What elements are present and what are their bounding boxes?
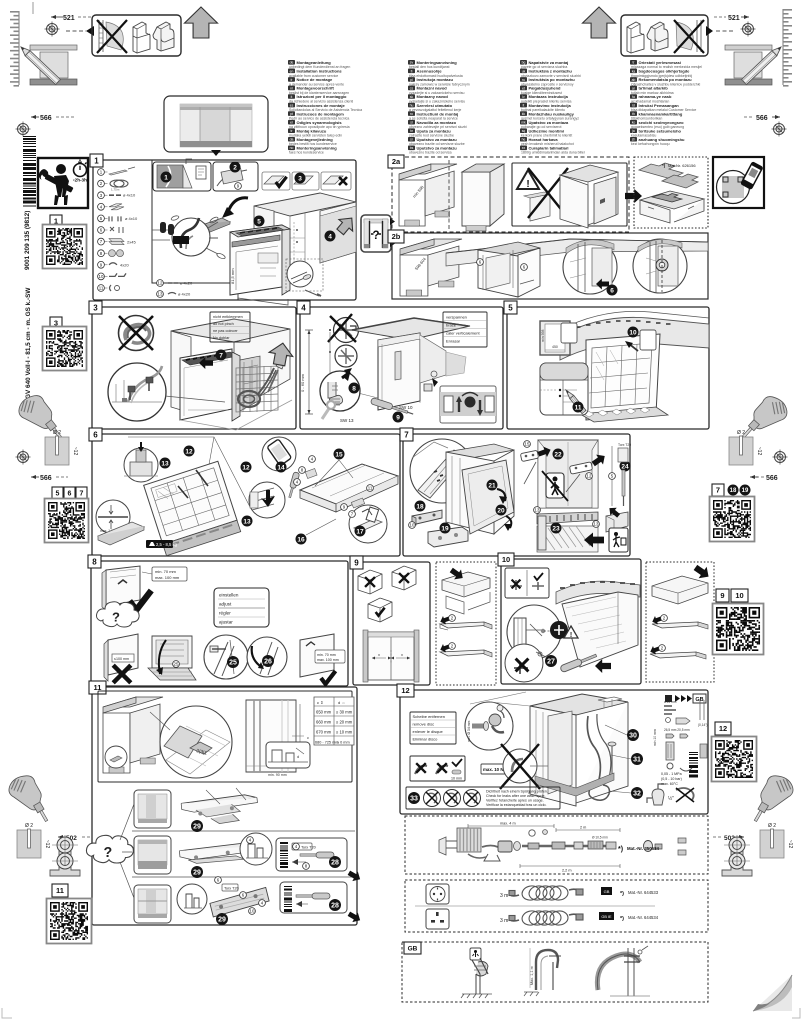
svg-text:19: 19 bbox=[742, 488, 749, 494]
svg-text:680 - 725 mm: 680 - 725 mm bbox=[315, 741, 338, 745]
svg-text:7: 7 bbox=[80, 491, 84, 498]
svg-text:25: 25 bbox=[174, 662, 179, 667]
svg-text:Scheibe entfernen: Scheibe entfernen bbox=[413, 714, 445, 719]
svg-text:brace: brace bbox=[446, 323, 457, 328]
svg-text:3: 3 bbox=[298, 175, 302, 182]
svg-text:?: ? bbox=[112, 610, 120, 625]
svg-text:faes hos kundeservice: faes hos kundeservice bbox=[289, 151, 324, 155]
svg-text:2b: 2b bbox=[392, 232, 401, 241]
svg-text:es: es bbox=[290, 103, 294, 107]
svg-text:16: 16 bbox=[297, 536, 305, 543]
svg-text:Ø 2: Ø 2 bbox=[53, 430, 61, 436]
svg-text:1800g umlddimalarimdan alda du: 1800g umlddimalarimdan alda duna biller bbox=[521, 151, 586, 155]
svg-text:~12: ~12 bbox=[787, 840, 793, 849]
svg-text:3 m: 3 m bbox=[500, 918, 508, 924]
svg-text:Verificar la estanqueidad tras: Verificar la estanqueidad tras un ciclo. bbox=[486, 803, 547, 807]
svg-text:10: 10 bbox=[735, 591, 743, 600]
svg-text:hu: hu bbox=[410, 103, 414, 107]
svg-text:caler verticalement: caler verticalement bbox=[446, 331, 480, 336]
svg-text:27: 27 bbox=[547, 659, 555, 666]
svg-text:bg: bg bbox=[522, 61, 526, 65]
svg-text:sq: sq bbox=[522, 129, 526, 133]
svg-text:GB: GB bbox=[604, 889, 610, 894]
svg-text:13: 13 bbox=[594, 522, 599, 527]
svg-text:Mat.-Nr. 350584: Mat.-Nr. 350584 bbox=[627, 846, 660, 851]
svg-text:13: 13 bbox=[535, 508, 540, 513]
svg-text:9: 9 bbox=[720, 591, 724, 600]
svg-text:adjust: adjust bbox=[219, 602, 232, 607]
svg-text:sl: sl bbox=[410, 121, 413, 125]
svg-text:ø 4x20: ø 4x20 bbox=[178, 292, 191, 297]
svg-text:2 m: 2 m bbox=[580, 826, 586, 830]
svg-text:c ⇕: c ⇕ bbox=[317, 700, 323, 705]
svg-text:29: 29 bbox=[193, 824, 201, 831]
svg-text:21: 21 bbox=[488, 482, 496, 489]
svg-text:11: 11 bbox=[368, 486, 373, 491]
svg-text:670 mm: 670 mm bbox=[316, 730, 332, 735]
svg-text:ø 4x20: ø 4x20 bbox=[180, 281, 193, 286]
svg-text:7: 7 bbox=[219, 352, 223, 359]
svg-text:kk: kk bbox=[522, 112, 526, 116]
svg-text:ø 4x10: ø 4x10 bbox=[125, 216, 138, 221]
svg-text:enlever le disque: enlever le disque bbox=[413, 729, 444, 734]
svg-text:x: x bbox=[378, 652, 380, 657]
svg-text:7: 7 bbox=[716, 486, 720, 495]
svg-text:11: 11 bbox=[575, 404, 582, 411]
svg-text:da: da bbox=[290, 138, 294, 142]
svg-text:verspannen: verspannen bbox=[446, 315, 467, 320]
svg-text:GB: GB bbox=[695, 697, 703, 703]
svg-text:1: 1 bbox=[94, 156, 99, 165]
svg-text:6: 6 bbox=[68, 491, 72, 498]
svg-text:521: 521 bbox=[728, 15, 740, 22]
svg-text:d: d bbox=[297, 754, 299, 759]
svg-text:pl: pl bbox=[410, 78, 413, 82]
svg-text:650 mm: 650 mm bbox=[316, 710, 332, 715]
svg-text:lv: lv bbox=[522, 95, 525, 99]
svg-text:~12: ~12 bbox=[756, 447, 762, 456]
svg-text:GB IE: GB IE bbox=[601, 915, 612, 919]
svg-text:12: 12 bbox=[401, 686, 409, 695]
svg-text:id: id bbox=[632, 103, 635, 107]
svg-text:12: 12 bbox=[242, 464, 250, 471]
svg-text:sk: sk bbox=[410, 95, 414, 99]
svg-text:obavezno trazite od servisa: obavezno trazite od servisa bbox=[409, 151, 452, 155]
svg-text:*): *) bbox=[620, 916, 624, 922]
svg-text:15: 15 bbox=[525, 442, 530, 447]
svg-text:fi: fi bbox=[411, 69, 413, 73]
svg-text:15: 15 bbox=[335, 451, 343, 458]
svg-text:régler: régler bbox=[219, 611, 231, 616]
svg-text:it: it bbox=[291, 95, 293, 99]
svg-text:2,2 m: 2,2 m bbox=[562, 869, 572, 873]
svg-text:max. 100 mm: max. 100 mm bbox=[155, 575, 180, 580]
svg-text:26: 26 bbox=[264, 659, 272, 666]
svg-text:½": ½" bbox=[668, 795, 674, 802]
svg-text:28: 28 bbox=[331, 903, 339, 910]
svg-text:min. 70 mm: min. 70 mm bbox=[317, 653, 336, 657]
svg-text:ab: ab bbox=[632, 78, 636, 82]
svg-text:nl: nl bbox=[290, 86, 293, 90]
svg-text:9: 9 bbox=[354, 558, 359, 567]
svg-text:11: 11 bbox=[99, 286, 104, 291]
svg-text:22: 22 bbox=[554, 451, 562, 458]
svg-text:einstellen: einstellen bbox=[219, 593, 239, 598]
svg-text:ne pas coincer: ne pas coincer bbox=[213, 329, 238, 333]
svg-text:660 mm: 660 mm bbox=[316, 720, 332, 725]
svg-text:min. Ø 34 mm: min. Ø 34 mm bbox=[467, 721, 471, 742]
svg-text:≥ 0 mm: ≥ 0 mm bbox=[337, 741, 350, 745]
svg-text:2: 2 bbox=[233, 164, 237, 171]
svg-text:no: no bbox=[290, 146, 294, 150]
svg-text:≥ 20 mm: ≥ 20 mm bbox=[336, 720, 353, 725]
svg-text:ro: ro bbox=[410, 112, 413, 116]
svg-text:8: 8 bbox=[352, 385, 356, 392]
svg-text:!: ! bbox=[570, 632, 572, 639]
svg-text:81,5 mm: 81,5 mm bbox=[230, 268, 235, 284]
svg-text:mk: mk bbox=[521, 121, 526, 125]
svg-text:min. 70 mm: min. 70 mm bbox=[155, 569, 177, 574]
svg-text:4: 4 bbox=[328, 233, 332, 240]
svg-text:Max. 1,1 m: Max. 1,1 m bbox=[530, 966, 534, 985]
svg-text:ø 4x10: ø 4x10 bbox=[123, 193, 136, 198]
svg-text:~12: ~12 bbox=[72, 447, 78, 456]
svg-text:12: 12 bbox=[158, 281, 163, 286]
svg-text:566: 566 bbox=[40, 475, 52, 482]
svg-text:et: et bbox=[522, 86, 525, 90]
svg-text:Ø 2: Ø 2 bbox=[768, 823, 776, 829]
svg-text:Check for leaks after one wash: Check for leaks after one wash cycle. bbox=[486, 794, 546, 798]
svg-text:Torx T20: Torx T20 bbox=[224, 887, 239, 891]
svg-text:6: 6 bbox=[93, 430, 98, 439]
svg-text:cs: cs bbox=[410, 86, 414, 90]
svg-text:d ⇔: d ⇔ bbox=[338, 700, 345, 705]
svg-text:kezi kefuzhongxin huoqu: kezi kefuzhongxin huoqu bbox=[631, 142, 670, 146]
svg-text:≤100 mm: ≤100 mm bbox=[114, 657, 129, 661]
svg-text:450: 450 bbox=[552, 345, 558, 349]
svg-text:?: ? bbox=[372, 230, 379, 242]
svg-text:29: 29 bbox=[193, 870, 201, 877]
svg-text:a 44 mm: a 44 mm bbox=[664, 700, 677, 704]
svg-text:10: 10 bbox=[410, 523, 415, 528]
svg-text:5: 5 bbox=[56, 491, 60, 498]
svg-text:0 - 60 mm: 0 - 60 mm bbox=[300, 373, 305, 392]
svg-text:pt: pt bbox=[290, 112, 293, 116]
svg-text:0,05 - 1 MPa: 0,05 - 1 MPa bbox=[661, 772, 682, 776]
svg-text:Mat.-Nr. 644533: Mat.-Nr. 644533 bbox=[628, 890, 659, 895]
svg-text:Ø 2: Ø 2 bbox=[737, 430, 745, 436]
svg-text:de: de bbox=[290, 61, 294, 65]
svg-text:1: 1 bbox=[164, 174, 168, 181]
svg-text:13: 13 bbox=[158, 292, 163, 297]
svg-text:566: 566 bbox=[40, 115, 52, 122]
svg-text:12: 12 bbox=[719, 724, 727, 733]
svg-text:ka: ka bbox=[632, 69, 636, 73]
svg-text:566: 566 bbox=[766, 475, 778, 482]
svg-text:Enrasar: Enrasar bbox=[446, 339, 461, 344]
svg-text:32: 32 bbox=[633, 791, 641, 798]
svg-text:*): *) bbox=[618, 846, 623, 853]
svg-text:max. 100 mm: max. 100 mm bbox=[317, 658, 339, 662]
svg-text:17: 17 bbox=[356, 528, 364, 535]
svg-text:ja: ja bbox=[631, 129, 635, 133]
svg-text:bs: bs bbox=[410, 146, 414, 150]
svg-text:2x45: 2x45 bbox=[127, 240, 136, 245]
svg-text:7: 7 bbox=[404, 430, 409, 439]
svg-text:*): *) bbox=[662, 163, 666, 168]
svg-text:th: th bbox=[632, 112, 635, 116]
svg-text:≥ 10 mm: ≥ 10 mm bbox=[336, 730, 353, 735]
svg-text:25: 25 bbox=[229, 660, 237, 667]
svg-text:24: 24 bbox=[621, 463, 629, 470]
svg-text:lt: lt bbox=[523, 103, 525, 107]
svg-text:9001 209 135 (9812): 9001 209 135 (9812) bbox=[24, 211, 31, 270]
svg-text:el: el bbox=[290, 121, 293, 125]
svg-text:31: 31 bbox=[633, 757, 641, 764]
svg-text:18: 18 bbox=[416, 503, 424, 510]
svg-text:sv: sv bbox=[410, 61, 414, 65]
svg-text:10 mm: 10 mm bbox=[451, 777, 462, 781]
svg-text:5: 5 bbox=[508, 303, 513, 312]
svg-text:9: 9 bbox=[396, 414, 400, 421]
svg-text:c: c bbox=[307, 735, 309, 740]
svg-text:Mat-Nr. 626156: Mat-Nr. 626156 bbox=[668, 163, 696, 168]
svg-text:min 598: min 598 bbox=[541, 329, 545, 342]
svg-text:(0,5 - 10 bar): (0,5 - 10 bar) bbox=[661, 777, 682, 781]
svg-text:28: 28 bbox=[331, 860, 339, 867]
svg-text:‹2h-3h: ‹2h-3h bbox=[73, 178, 87, 183]
svg-text:10: 10 bbox=[250, 909, 255, 914]
svg-text:566: 566 bbox=[756, 115, 768, 122]
svg-text:5: 5 bbox=[257, 218, 261, 225]
svg-text:23: 23 bbox=[552, 525, 560, 532]
svg-text:nicht entklemmen: nicht entklemmen bbox=[213, 315, 243, 319]
svg-text:uk: uk bbox=[522, 69, 526, 73]
svg-text:4x20: 4x20 bbox=[120, 262, 129, 267]
svg-text:26,5 mm 20,5 mm: 26,5 mm 20,5 mm bbox=[664, 728, 690, 732]
svg-text:20: 20 bbox=[497, 507, 505, 514]
svg-text:29: 29 bbox=[218, 917, 226, 924]
svg-text:Mat.-Nr. 644534: Mat.-Nr. 644534 bbox=[628, 915, 659, 920]
svg-text:10: 10 bbox=[99, 274, 104, 279]
svg-text:ko: ko bbox=[632, 121, 636, 125]
svg-text:Eliminar disco: Eliminar disco bbox=[413, 737, 439, 742]
svg-text:10: 10 bbox=[629, 329, 637, 336]
svg-text:GV 640 Voll-I - 81,5 cm - m. G: GV 640 Voll-I - 81,5 cm - m. GS k.-SW bbox=[25, 287, 32, 399]
svg-text:!: ! bbox=[526, 179, 529, 190]
svg-text:12: 12 bbox=[185, 448, 193, 455]
svg-text:max. 4 m: max. 4 m bbox=[500, 822, 516, 826]
svg-text:13: 13 bbox=[161, 460, 169, 467]
svg-text:ru: ru bbox=[522, 78, 525, 82]
svg-text:xx: xx bbox=[522, 146, 526, 150]
svg-text:Torx T20: Torx T20 bbox=[301, 846, 316, 850]
svg-text:min 10 mm: min 10 mm bbox=[653, 729, 657, 746]
svg-text:~12: ~12 bbox=[44, 840, 50, 849]
svg-text:en: en bbox=[290, 69, 294, 73]
svg-text:Ø 10,5 mm: Ø 10,5 mm bbox=[592, 836, 608, 840]
svg-text:6: 6 bbox=[610, 287, 614, 294]
svg-text:2a: 2a bbox=[392, 157, 401, 166]
svg-text:SW 10: SW 10 bbox=[399, 405, 413, 410]
svg-text:18: 18 bbox=[730, 488, 737, 494]
svg-text:he: he bbox=[522, 138, 526, 142]
svg-text:Ø 2: Ø 2 bbox=[25, 823, 33, 829]
svg-text:10: 10 bbox=[502, 555, 510, 564]
svg-text:fa: fa bbox=[632, 95, 635, 99]
svg-text:12: 12 bbox=[587, 474, 592, 479]
svg-text:33: 33 bbox=[410, 796, 418, 803]
svg-text:ajustar: ajustar bbox=[219, 620, 233, 625]
svg-text:No doblar: No doblar bbox=[213, 336, 230, 340]
svg-text:2,5 - 8,5 kg: 2,5 - 8,5 kg bbox=[156, 542, 178, 547]
svg-text:4: 4 bbox=[301, 303, 306, 312]
svg-text:x: x bbox=[401, 652, 403, 657]
svg-text:*): *) bbox=[620, 891, 624, 897]
svg-text:≥ 30 mm: ≥ 30 mm bbox=[336, 710, 353, 715]
svg-text:19: 19 bbox=[441, 525, 449, 532]
svg-text:(0,14"): (0,14") bbox=[698, 723, 707, 727]
svg-text:8: 8 bbox=[92, 557, 97, 566]
svg-text:zh: zh bbox=[632, 138, 636, 142]
svg-text:11: 11 bbox=[56, 886, 64, 895]
svg-text:13: 13 bbox=[243, 518, 251, 525]
svg-text:3: 3 bbox=[93, 303, 98, 312]
svg-text:1,75m: 1,75m bbox=[111, 188, 120, 192]
svg-text:30: 30 bbox=[629, 733, 637, 740]
svg-text:14: 14 bbox=[277, 464, 285, 471]
svg-text:Verifiez l'etancheite apres un: Verifiez l'etancheite apres un usage. bbox=[486, 799, 544, 803]
svg-text:521: 521 bbox=[63, 15, 75, 22]
svg-text:3 m: 3 m bbox=[500, 893, 508, 899]
svg-text:Torx T20: Torx T20 bbox=[618, 443, 631, 447]
svg-text:do not pinch: do not pinch bbox=[213, 322, 234, 326]
svg-text:remove disc: remove disc bbox=[413, 722, 435, 727]
svg-text:Dichtheit nach einem Spülgang: Dichtheit nach einem Spülgang prüfen. bbox=[486, 790, 548, 794]
svg-text:?: ? bbox=[104, 845, 113, 861]
svg-text:GB: GB bbox=[408, 945, 418, 952]
svg-text:min. 90 mm: min. 90 mm bbox=[268, 773, 287, 777]
svg-text:SW 13: SW 13 bbox=[340, 418, 354, 423]
